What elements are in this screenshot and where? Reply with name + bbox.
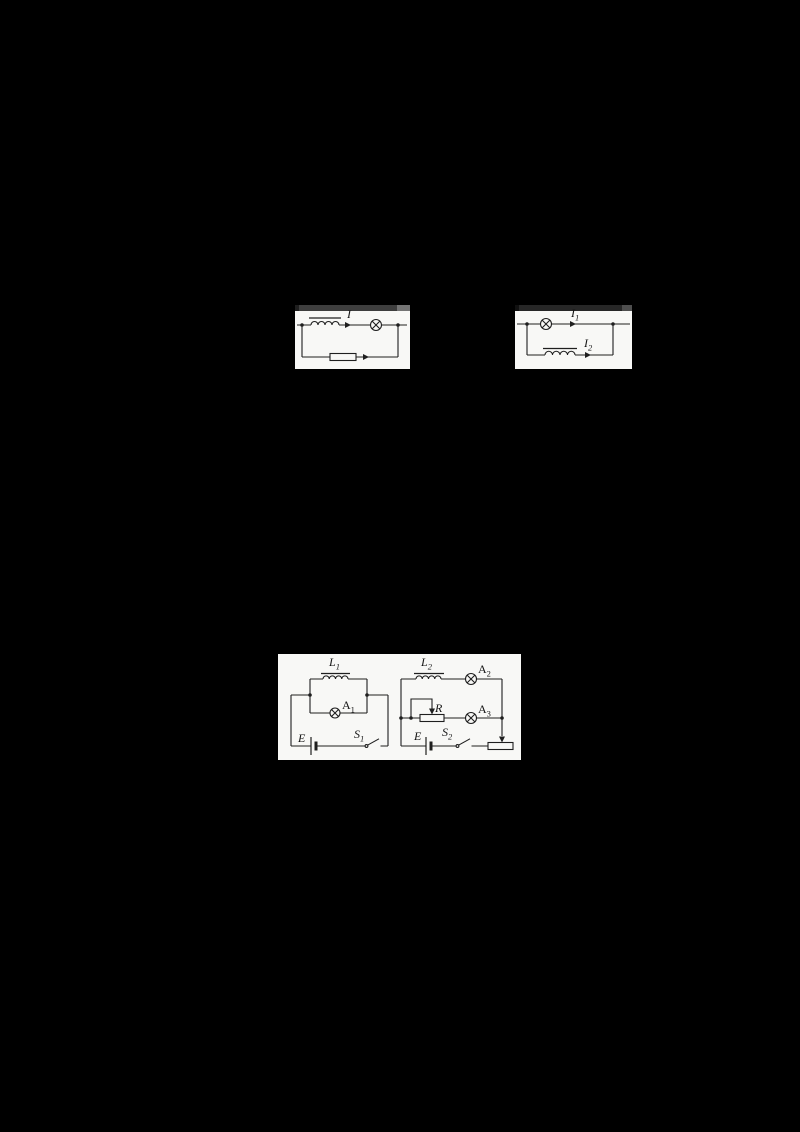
switch-icon — [365, 739, 379, 748]
bottom-branch-wire — [527, 324, 613, 355]
lamp-icon — [330, 708, 340, 718]
label-battery-E: E — [414, 730, 421, 745]
label-rheostat-R: R — [435, 702, 442, 717]
resistor-icon — [330, 354, 356, 361]
label-current-I: I — [347, 308, 351, 323]
label-lamp-A2: A2 — [478, 663, 491, 678]
label-current-I1: I1 — [571, 307, 579, 322]
battery-icon — [311, 737, 316, 755]
current-arrow-right — [585, 352, 591, 358]
lamp-icon — [371, 320, 382, 331]
junction-dot — [500, 716, 504, 720]
figure-series-inductor-lamp-circuit: I — [295, 305, 410, 369]
rheostat-slider-wire — [411, 699, 432, 718]
label-switch-S2: S2 — [442, 726, 452, 741]
label-battery-E: E — [298, 732, 305, 747]
lamp-icon — [466, 674, 477, 685]
inductor-coil-icon — [311, 322, 339, 326]
label-inductor-L1: L1 — [329, 656, 340, 671]
inductor-coil-icon — [416, 676, 441, 679]
current-arrow-right — [345, 322, 351, 328]
slider-arrow-down — [499, 737, 505, 743]
left-experiment-circuit — [291, 674, 388, 756]
label-current-I2: I2 — [584, 337, 592, 352]
battery-icon — [426, 737, 431, 755]
inductor-coil-icon — [545, 351, 575, 355]
figure-self-induction-experiments: L1 A1 E S1 L2 A2 R A3 E S2 — [278, 654, 521, 760]
circuit-drawing-series — [295, 305, 410, 369]
junction-dot — [399, 716, 403, 720]
outer-loop-wires — [291, 695, 388, 746]
label-lamp-A3: A3 — [478, 703, 491, 718]
junction-dot — [365, 693, 369, 697]
switch-icon — [456, 739, 470, 748]
label-lamp-A1: A1 — [342, 699, 355, 714]
inductor-coil-icon — [323, 676, 348, 679]
junction-dot — [525, 322, 529, 326]
junction-dot — [396, 323, 400, 327]
lamp-icon — [466, 713, 477, 724]
junction-dot — [611, 322, 615, 326]
junction-dot — [308, 693, 312, 697]
bottom-rheostat-icon — [488, 743, 513, 750]
parallel-box-wires — [310, 679, 367, 713]
junction-dot — [409, 716, 413, 720]
junction-dot — [300, 323, 304, 327]
current-arrow-right — [363, 354, 369, 360]
left-circuit-dots — [308, 693, 369, 697]
lamp-icon — [541, 319, 552, 330]
label-switch-S1: S1 — [354, 728, 364, 743]
label-inductor-L2: L2 — [421, 656, 432, 671]
figure-parallel-lamp-inductor-circuit: I1 I2 — [515, 305, 632, 369]
bottom-loop-wire — [302, 325, 398, 357]
